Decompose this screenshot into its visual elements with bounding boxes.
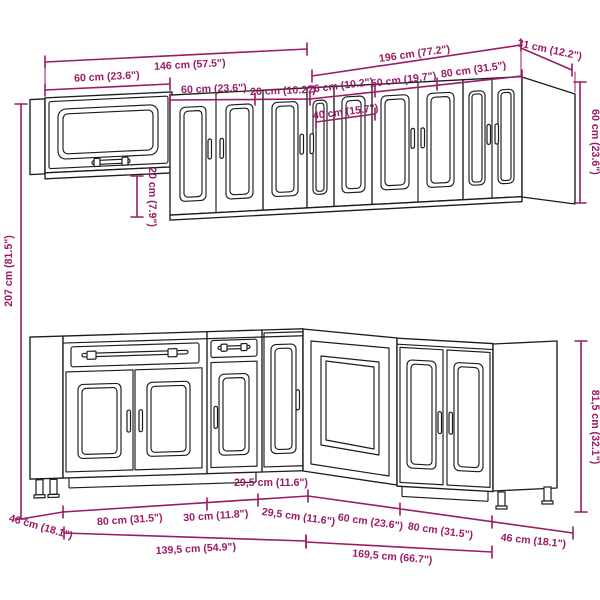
- diagram-canvas: 146 cm (57.5") 196 cm (77.2") 31 cm (12.…: [0, 0, 600, 600]
- base-leg: [50, 479, 57, 494]
- base-door-handle: [296, 390, 300, 410]
- dim-line-total-height: [15, 104, 27, 519]
- dim-label-base-80-left: 80 cm (31.5"): [97, 512, 163, 529]
- wall-door-handle: [310, 134, 314, 154]
- glass-cabinet-side-panel: [30, 99, 45, 175]
- base-small-drawer-handle-mount: [221, 344, 227, 351]
- dim-line-base-height: [575, 341, 587, 512]
- dim-label-total-height: 207 cm (81.5"): [3, 235, 15, 307]
- base-leg-foot: [34, 495, 45, 498]
- base-leg-foot: [48, 494, 59, 497]
- wall-door-handle: [208, 139, 212, 159]
- dim-label-wall-total-left: 146 cm (57.5"): [154, 57, 226, 73]
- wall-cabinet-run: [170, 77, 522, 220]
- dim-line-wall-height: [574, 82, 586, 203]
- base-door-handle: [438, 411, 442, 433]
- dim-label-base-side-right: 46 cm (18.1"): [500, 532, 567, 551]
- dim-label-base-total-right: 169,5 cm (66.7"): [352, 548, 433, 567]
- dim-label-wall-return-depth: 31 cm (12.2"): [516, 37, 583, 62]
- base-door-handle: [127, 410, 131, 432]
- base-door-handle: [139, 410, 143, 432]
- base-small-drawer-handle-mount: [241, 343, 247, 350]
- dim-label-glass-cabinet-width: 60 cm (23.6"): [74, 69, 140, 84]
- dim-label-gap-below-glass: 20 cm (7.9"): [146, 167, 158, 227]
- wall-door-handle: [421, 128, 425, 148]
- wall-door-handle: [300, 134, 304, 154]
- base-leg: [36, 480, 43, 495]
- base-leg-foot: [496, 506, 507, 509]
- dim-label-base-height: 81,5 cm (32.1"): [589, 390, 600, 465]
- base-door-handle: [214, 406, 218, 428]
- base-corner-cabinet: [303, 329, 397, 485]
- base-cabinet-run-left: [30, 329, 303, 498]
- base-cabinet-run-right: [397, 338, 493, 501]
- base-drawer-handle-mount: [87, 351, 96, 359]
- wall-door-handle: [487, 124, 491, 144]
- wall-door-handle: [220, 138, 224, 158]
- glass-cabinet-handle-mount-right: [122, 157, 128, 165]
- base-door-handle: [449, 412, 453, 434]
- base-leg: [498, 492, 505, 506]
- base-right-side-panel: [493, 341, 557, 491]
- dim-label-wall-height: 60 cm (23.6"): [589, 109, 600, 175]
- wall-door-handle: [411, 128, 415, 148]
- dim-label-base-30: 30 cm (11.8"): [183, 508, 249, 525]
- base-leg: [544, 487, 551, 501]
- kitchen-dimension-diagram: 146 cm (57.5") 196 cm (77.2") 31 cm (12.…: [0, 0, 600, 600]
- dim-label-base-side-left: 46 cm (18.1"): [8, 512, 74, 542]
- dim-label-base-total-left: 139,5 cm (54.9"): [155, 541, 236, 557]
- base-left-side-panel: [30, 336, 63, 479]
- glass-cabinet-handle-mount-left: [94, 158, 100, 166]
- dim-label-base-corner-60: 60 cm (23.6"): [337, 512, 404, 533]
- base-drawer-handle-mount: [168, 349, 177, 357]
- dim-label-base-80-right: 80 cm (31.5"): [407, 521, 474, 542]
- base-corner-face: [303, 329, 397, 485]
- dim-label-wall-cabinet-26a: 26 cm (10.2"): [250, 84, 316, 98]
- wall-run-end-panel: [522, 77, 575, 204]
- dim-label-wall-cabinet-60: 60 cm (23.6"): [181, 82, 247, 96]
- wall-door-handle: [495, 124, 499, 144]
- base-leg-foot: [542, 501, 553, 504]
- dim-label-base-filler-left: 29,5 cm (11.6"): [234, 477, 308, 489]
- dim-label-wall-total-right: 196 cm (77.2"): [378, 43, 451, 65]
- dim-label-base-filler-right: 29,5 cm (11.6"): [261, 506, 336, 528]
- dim-line-gap-below-glass: [131, 176, 143, 217]
